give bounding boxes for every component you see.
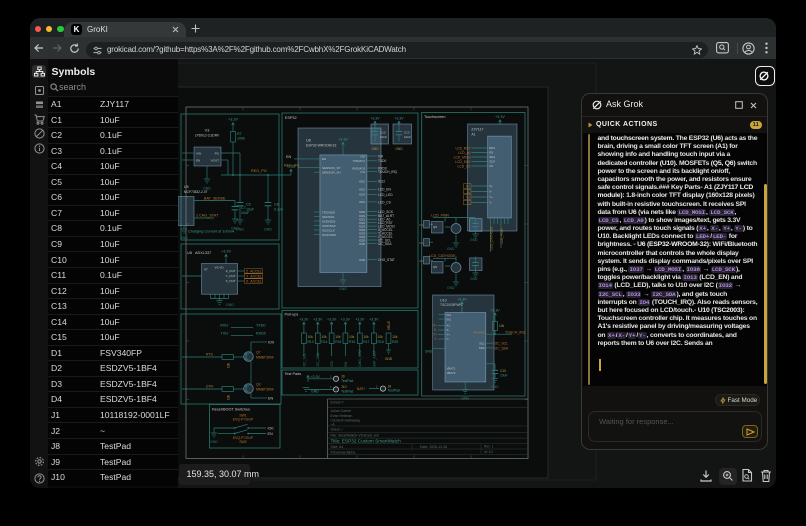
svg-text:GND: GND	[339, 287, 347, 291]
svg-text:U5: U5	[184, 185, 189, 189]
svg-text:C5: C5	[246, 203, 251, 207]
svg-text:Touchscreen: Touchscreen	[424, 115, 446, 119]
svg-text:Y-: Y-	[467, 201, 470, 205]
svg-text:SDA: SDA	[479, 346, 485, 350]
svg-text:IO0: IO0	[330, 361, 334, 366]
svg-text:R14: R14	[321, 340, 327, 344]
svg-text:IO0: IO0	[268, 340, 274, 344]
svg-text:SCS/CMD: SCS/CMD	[322, 233, 337, 237]
svg-text:C8: C8	[274, 203, 279, 207]
svg-text:LCD_CATHODE: LCD_CATHODE	[429, 254, 456, 258]
svg-text:R7: R7	[237, 132, 242, 136]
svg-text:+3.3V: +3.3V	[313, 317, 323, 321]
svg-text:EN: EN	[268, 432, 273, 436]
svg-text:X+: X+	[489, 184, 493, 188]
svg-text:IO12: IO12	[378, 180, 385, 184]
svg-text:10k: 10k	[499, 324, 505, 328]
svg-text:EN: EN	[322, 157, 326, 161]
svg-text:Y_ACCEL: Y_ACCEL	[246, 274, 262, 278]
svg-text:TestPad: TestPad	[388, 389, 400, 393]
svg-text:Reset/BOOT Switches: Reset/BOOT Switches	[212, 408, 250, 412]
svg-text:IO4: IO4	[360, 170, 365, 174]
svg-text:TXD0/IO1: TXD0/IO1	[353, 159, 366, 163]
svg-text:LCD_PWR: LCD_PWR	[431, 213, 449, 217]
svg-text:Y-: Y-	[489, 201, 492, 205]
svg-text:Y-: Y-	[434, 337, 437, 341]
svg-text:Size: A4: Size: A4	[331, 445, 344, 449]
svg-text:TOUCH_IRQ: TOUCH_IRQ	[505, 331, 526, 335]
svg-text:LCD_LED: LCD_LED	[378, 193, 393, 197]
svg-text:R17: R17	[363, 340, 369, 344]
svg-text:GND: GND	[210, 440, 218, 444]
svg-text:ESP32-WROOM-32: ESP32-WROOM-32	[306, 144, 336, 148]
svg-text:TXD0: TXD0	[378, 159, 387, 163]
svg-text:VOUT: VOUT	[211, 159, 220, 163]
svg-text:RS: RS	[489, 151, 493, 155]
svg-text:C10: C10	[500, 369, 506, 373]
svg-text:Y-: Y-	[447, 337, 450, 341]
svg-text:Id: 1/1: Id: 1/1	[484, 450, 493, 454]
svg-text:Pull-ups: Pull-ups	[285, 313, 299, 317]
svg-text:MCP73832-2-0T: MCP73832-2-0T	[184, 190, 208, 194]
svg-text:SCK/CLK: SCK/CLK	[322, 228, 335, 232]
svg-text:RXD: RXD	[220, 323, 228, 327]
svg-text:IO14: IO14	[359, 193, 366, 197]
svg-text:EN: EN	[196, 159, 200, 163]
svg-text:GND: GND	[425, 350, 433, 354]
svg-text:TXD0: TXD0	[256, 323, 265, 327]
svg-text:Y+: Y+	[433, 333, 437, 337]
svg-text:10k: 10k	[363, 335, 369, 339]
svg-text:BAT_SENSE: BAT_SENSE	[204, 196, 226, 200]
svg-text:R19: R19	[392, 340, 398, 344]
svg-text:REG_PG: REG_PG	[284, 164, 300, 168]
svg-text:Ernest Y: Ernest Y	[331, 401, 345, 405]
svg-text:R13: R13	[308, 340, 314, 344]
svg-text:IO36: IO36	[359, 242, 366, 246]
svg-text:LCD_RST: LCD_RST	[455, 146, 470, 150]
svg-text:ESP32: ESP32	[285, 116, 297, 120]
svg-text:SENSOR_VP: SENSOR_VP	[322, 166, 340, 170]
svg-text:VBAT1: VBAT1	[447, 367, 456, 371]
svg-text:PG: PG	[215, 152, 220, 156]
svg-text:1 CHG_STAT: 1 CHG_STAT	[196, 214, 219, 218]
svg-text:EN: EN	[286, 155, 291, 159]
svg-text:BAT_ALRT: BAT_ALRT	[372, 350, 376, 366]
svg-text:RTS: RTS	[206, 353, 213, 357]
svg-text:SWP/SD3: SWP/SD3	[322, 224, 336, 228]
svg-text:TestPad: TestPad	[341, 379, 353, 383]
svg-text:Q5: Q5	[433, 225, 437, 229]
svg-text:10uF: 10uF	[404, 135, 411, 139]
svg-text:10uF: 10uF	[241, 211, 250, 215]
svg-text:X_OUT: X_OUT	[226, 279, 236, 283]
svg-text:R16: R16	[349, 340, 355, 344]
svg-text:VIN: VIN	[196, 152, 201, 156]
svg-text:CS: CS	[489, 164, 493, 168]
svg-text:GND: GND	[491, 385, 499, 389]
svg-text:VBAT2: VBAT2	[447, 371, 456, 375]
svg-text:X-: X-	[447, 328, 450, 332]
svg-text:GND: GND	[461, 397, 469, 401]
svg-text:Clement Hathaway: Clement Hathaway	[331, 419, 361, 423]
svg-text:D3: D3	[420, 241, 424, 245]
svg-text:Y+: Y+	[489, 195, 493, 199]
svg-text:Rev: 1: Rev: 1	[484, 445, 494, 449]
svg-text:+3.3V: +3.3V	[369, 317, 379, 321]
svg-text:SW2: SW2	[239, 440, 246, 444]
svg-text:SCL: SCL	[479, 341, 485, 345]
svg-text:X-: X-	[434, 328, 437, 332]
svg-text:EN: EN	[268, 396, 274, 400]
svg-text:X+: X+	[433, 324, 437, 328]
svg-text:Title: ESP32 Custom SmartWatch: Title: ESP32 Custom SmartWatch	[331, 439, 402, 444]
svg-text:EN: EN	[344, 361, 348, 366]
svg-text:TXD: TXD	[221, 331, 229, 335]
svg-text:RXD0: RXD0	[256, 331, 266, 335]
svg-text:C13: C13	[404, 130, 410, 134]
svg-text:I2C_SDA: I2C_SDA	[378, 242, 392, 246]
svg-text:Q6: Q6	[433, 265, 437, 269]
svg-text:IO0: IO0	[360, 154, 365, 158]
svg-text:U8: U8	[187, 251, 192, 255]
svg-text:10uF: 10uF	[500, 374, 508, 378]
svg-text:DTR: DTR	[206, 385, 214, 389]
svg-text:LCD_A0: LCD_A0	[458, 151, 471, 155]
svg-text:LCD_CATHODE: LCD_CATHODE	[490, 227, 494, 250]
svg-text:GND: GND	[264, 228, 272, 232]
svg-text:+3.3V: +3.3V	[355, 317, 365, 321]
svg-text:R15: R15	[335, 340, 341, 344]
svg-text:LCD_CS: LCD_CS	[457, 164, 471, 168]
svg-text:+3.3V: +3.3V	[228, 118, 238, 122]
svg-text:LCD_SCK: LCD_SCK	[455, 160, 471, 164]
svg-text:10k: 10k	[227, 362, 231, 368]
svg-text:Y+: Y+	[447, 333, 451, 337]
svg-text:EVQ-P7/GUP: EVQ-P7/GUP	[233, 418, 254, 422]
svg-text:RES: RES	[489, 146, 495, 150]
svg-text:VBUS: VBUS	[387, 320, 391, 330]
svg-text:10k: 10k	[308, 335, 314, 339]
svg-text:SCK: SCK	[489, 160, 495, 164]
svg-text:C7: C7	[241, 206, 246, 210]
svg-text:A1: A1	[471, 132, 475, 136]
svg-text:GND: GND	[180, 236, 188, 240]
svg-text:LCD_CS: LCD_CS	[378, 200, 392, 204]
svg-text:LPD912-3.3DRV: LPD912-3.3DRV	[195, 133, 220, 137]
svg-text:TestPad: TestPad	[341, 389, 353, 393]
svg-text:IO15: IO15	[359, 200, 366, 204]
svg-text:VS VD: VS VD	[214, 265, 224, 269]
svg-text:100k: 100k	[237, 137, 245, 141]
svg-text:+3.3V: +3.3V	[311, 375, 321, 379]
svg-text:+3.3V: +3.3V	[490, 308, 500, 312]
svg-text:I2C_SDA: I2C_SDA	[316, 352, 320, 367]
svg-text:Z_ACCEL: Z_ACCEL	[246, 269, 262, 273]
svg-text:IO12: IO12	[359, 180, 366, 184]
svg-text:ADXL337: ADXL337	[195, 251, 211, 255]
svg-text:CHG_STAT: CHG_STAT	[358, 349, 362, 366]
svg-text:10k: 10k	[349, 335, 355, 339]
svg-text:IO13: IO13	[359, 188, 366, 192]
svg-text:IN2: IN2	[447, 313, 452, 317]
svg-text:PENIRQ: PENIRQ	[473, 331, 485, 335]
svg-text:D2: D2	[420, 223, 424, 227]
svg-text:SENSOR_VN: SENSOR_VN	[322, 170, 341, 174]
svg-text:BAT+: BAT+	[357, 387, 366, 391]
svg-text:GND: GND	[447, 247, 455, 251]
svg-text:Y+: Y+	[466, 195, 470, 199]
svg-text:File: SmartWatch-V5.kicad_sch: File: SmartWatch-V5.kicad_sch	[331, 434, 380, 438]
svg-text:+3.3V: +3.3V	[395, 117, 405, 121]
svg-text:Evan Hellman: Evan Hellman	[331, 414, 353, 418]
svg-text:GND: GND	[371, 147, 379, 151]
svg-text:GND: GND	[470, 238, 478, 242]
svg-text:MMBT3904: MMBT3904	[256, 356, 274, 360]
svg-text:ST: ST	[204, 268, 208, 272]
svg-text:CHG_STAT: CHG_STAT	[378, 258, 395, 262]
svg-text:REG_PG: REG_PG	[251, 169, 267, 173]
svg-text:+3.3V: +3.3V	[221, 249, 231, 253]
svg-text:GND: GND	[395, 147, 403, 151]
svg-text:0.1uF: 0.1uF	[274, 208, 284, 212]
svg-text:+3.3V: +3.3V	[338, 138, 348, 142]
svg-text:IN1: IN1	[447, 317, 452, 321]
svg-text:R18: R18	[378, 340, 384, 344]
svg-text:+3.3V: +3.3V	[495, 115, 505, 119]
svg-text:Date: 2025-12-06: Date: 2025-12-06	[420, 445, 447, 449]
svg-text:X-: X-	[467, 190, 470, 194]
svg-text:GND/SD2: GND/SD2	[322, 219, 336, 223]
svg-text:10k: 10k	[378, 335, 384, 339]
svg-text:Z_OUT: Z_OUT	[226, 269, 236, 273]
svg-text:Julian Carrier: Julian Carrier	[331, 409, 353, 413]
svg-text:SDA: SDA	[489, 155, 495, 159]
svg-text:TOUCH_IRQ: TOUCH_IRQ	[378, 170, 398, 174]
svg-text:10uF: 10uF	[380, 135, 387, 139]
svg-text:LCD_MOSI: LCD_MOSI	[454, 155, 471, 159]
svg-text:10k: 10k	[392, 335, 398, 339]
svg-text:+3.3V: +3.3V	[371, 117, 381, 121]
svg-text:D4: D4	[420, 259, 424, 263]
svg-text:TDO/SD0: TDO/SD0	[322, 210, 335, 214]
svg-text:Q3: Q3	[256, 383, 261, 387]
svg-text:C12: C12	[380, 130, 386, 134]
svg-text:IO0: IO0	[268, 426, 274, 430]
svg-text:MMBT3904: MMBT3904	[256, 388, 274, 392]
svg-text:GND: GND	[470, 277, 478, 281]
svg-text:GND: GND	[447, 286, 455, 290]
svg-text:Sheet: /: Sheet: /	[331, 427, 343, 431]
svg-text:X+: X+	[447, 324, 451, 328]
svg-text:KiCanvas Alpha: KiCanvas Alpha	[331, 451, 356, 455]
svg-text:LCD_EN: LCD_EN	[378, 188, 391, 192]
svg-text:LCD_PWR: LCD_PWR	[500, 228, 504, 244]
svg-text:IO0: IO0	[378, 154, 383, 158]
svg-text:I2C_SCL: I2C_SCL	[495, 342, 509, 346]
svg-text:IO39: IO39	[359, 258, 366, 262]
svg-text:I2C_SCL: I2C_SCL	[302, 353, 306, 367]
svg-text:ZJY117: ZJY117	[471, 128, 483, 132]
svg-text:Test Pads: Test Pads	[285, 372, 302, 376]
svg-text:10k: 10k	[321, 335, 327, 339]
svg-text:U6: U6	[306, 139, 311, 143]
svg-text:Q7: Q7	[256, 351, 261, 355]
svg-text:10k: 10k	[227, 394, 231, 400]
svg-text:GND: GND	[226, 303, 234, 307]
svg-text:X_ACCEL: X_ACCEL	[246, 279, 262, 283]
svg-text:Charging Current of 100mA: Charging Current of 100mA	[188, 230, 235, 234]
svg-text:10k: 10k	[335, 335, 341, 339]
svg-text:V3: V3	[205, 129, 210, 133]
svg-text:Y_OUT: Y_OUT	[226, 274, 236, 278]
svg-text:SD0/SD1: SD0/SD1	[322, 215, 335, 219]
svg-text:GND: GND	[311, 390, 319, 394]
svg-text:X-: X-	[489, 190, 492, 194]
svg-text:I2C_SDA: I2C_SDA	[495, 346, 510, 350]
svg-text:+3.3V: +3.3V	[327, 317, 337, 321]
svg-text:+3.3V: +3.3V	[299, 317, 309, 321]
svg-text:+3.3V: +3.3V	[341, 317, 351, 321]
svg-text:GND: GND	[385, 357, 393, 361]
svg-text:X+: X+	[466, 184, 470, 188]
